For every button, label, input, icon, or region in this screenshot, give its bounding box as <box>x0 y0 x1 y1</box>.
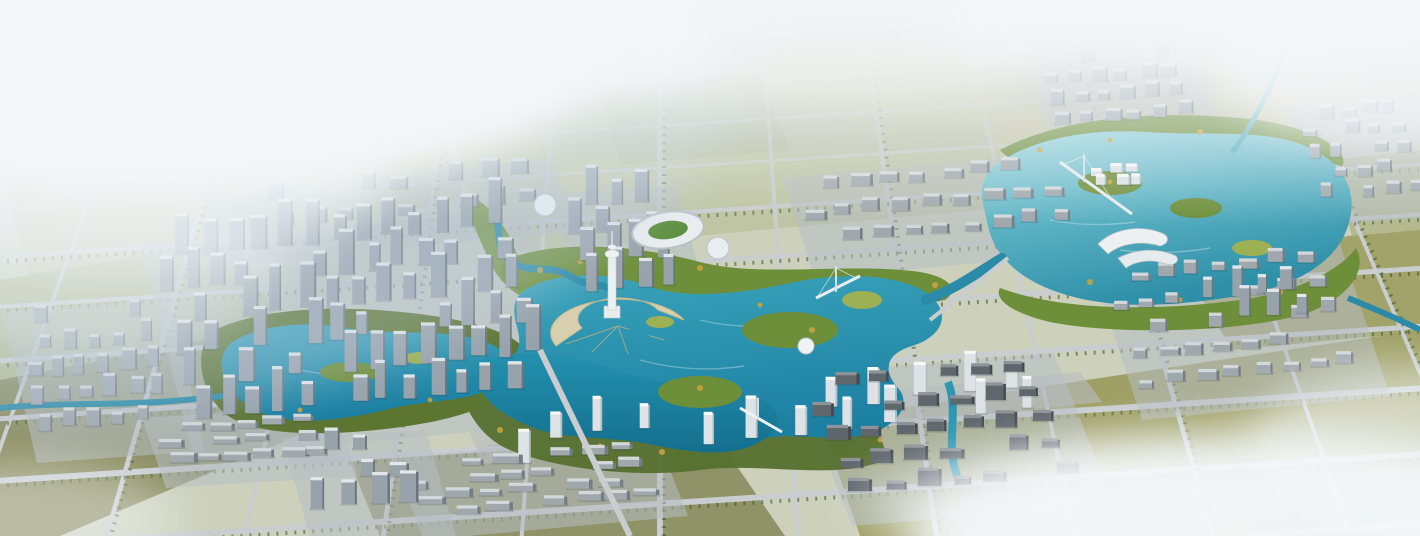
masterplan-aerial-view <box>0 0 1420 536</box>
dome-pavilion-island <box>798 338 814 354</box>
aerial-city-rendering <box>0 0 1420 536</box>
south-towers-ground <box>282 430 456 536</box>
dome-hall-east <box>707 237 729 259</box>
